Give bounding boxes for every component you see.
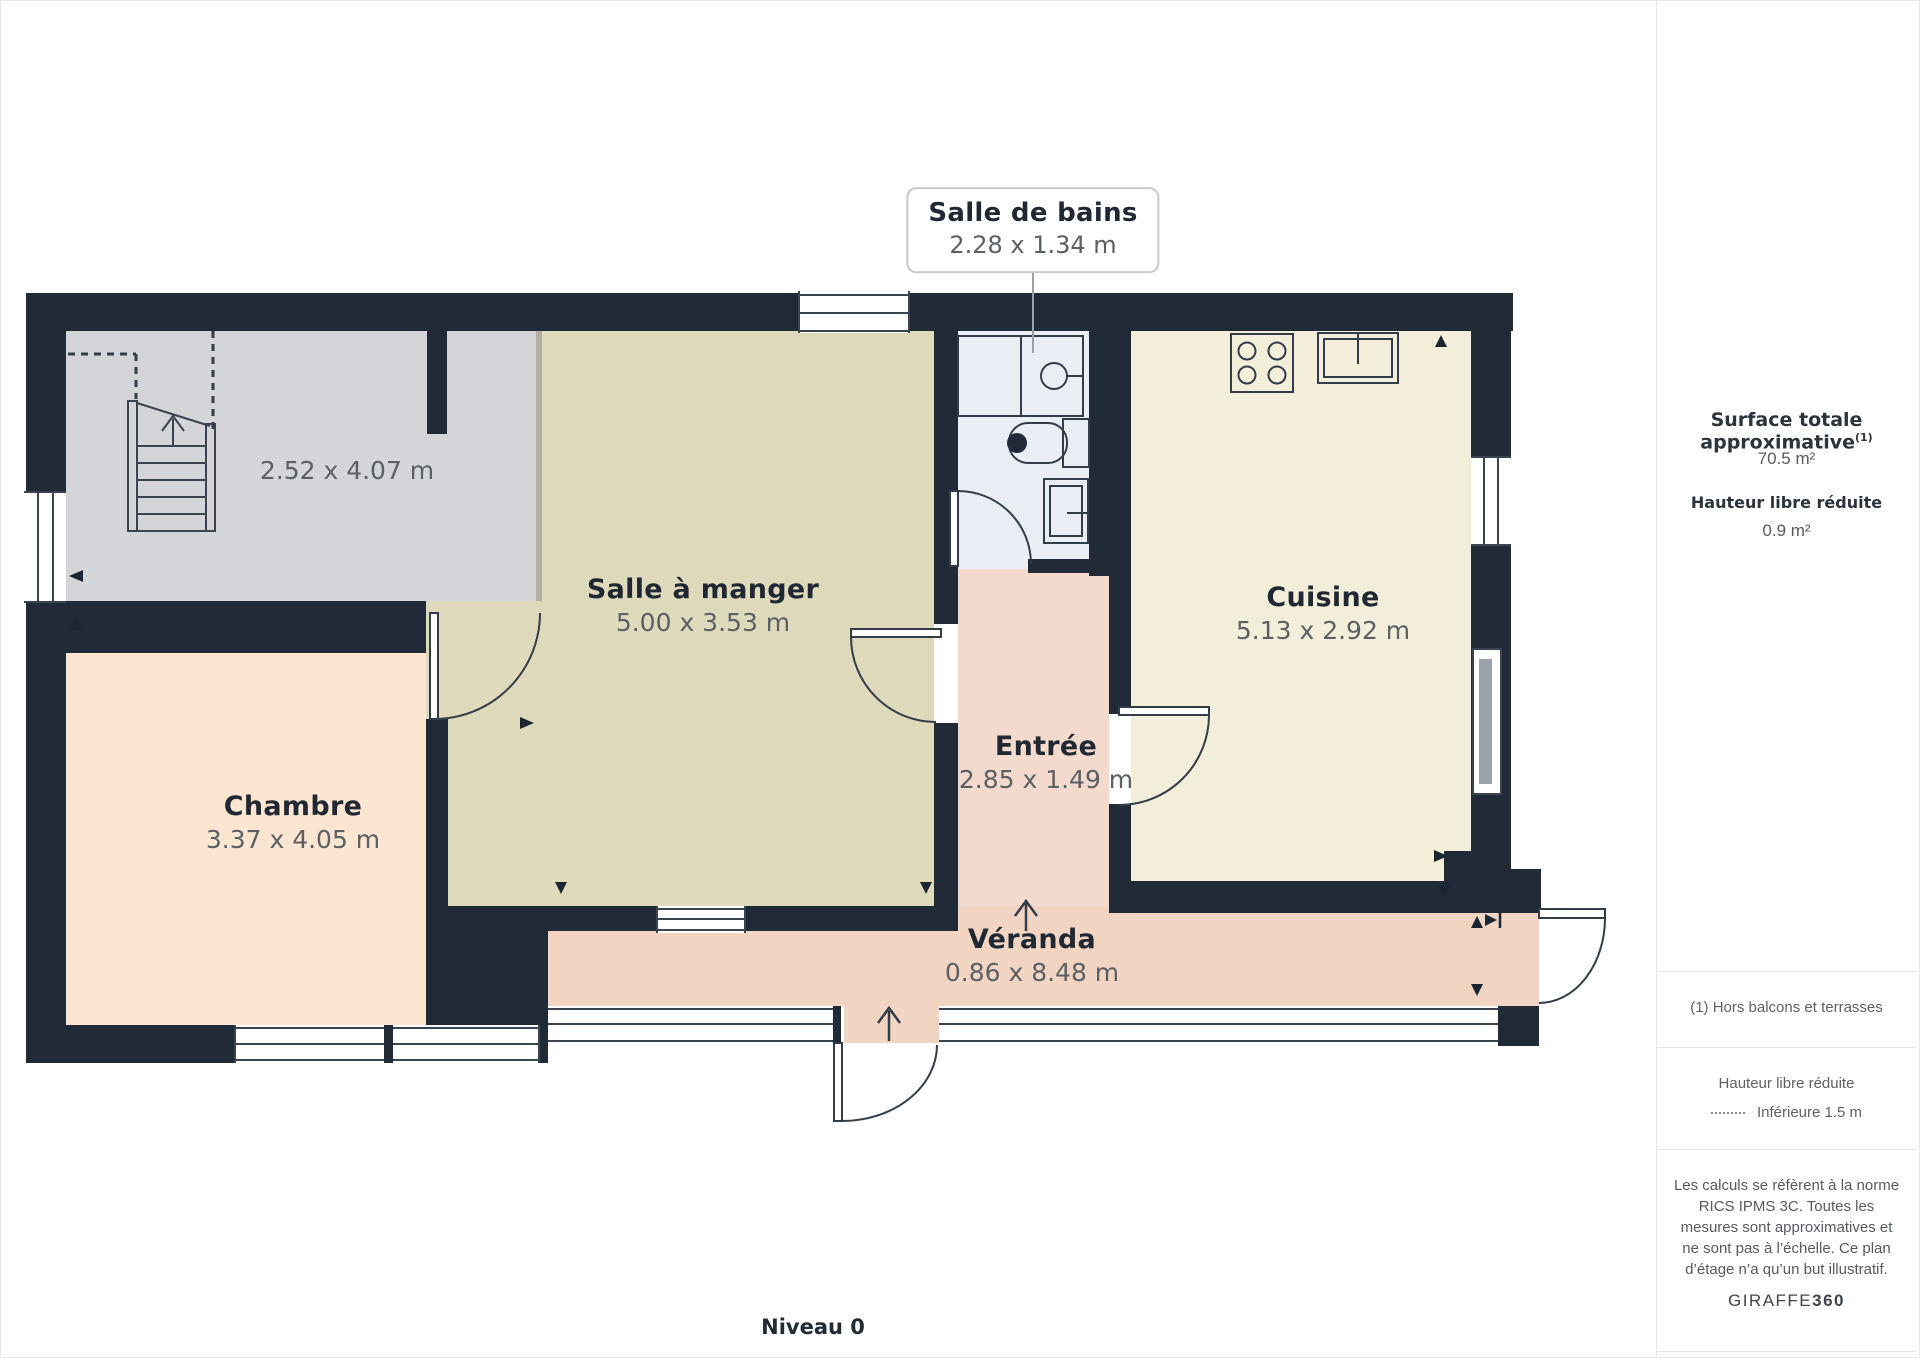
open-plan-divider (536, 331, 542, 601)
brand-bold: 360 (1812, 1291, 1845, 1310)
total-area-value: 70.5 m² (1657, 449, 1916, 469)
window-kitchen-right (1471, 456, 1511, 546)
brand-logo: GIRAFFE360 (1657, 1291, 1916, 1311)
sliding-panel-kitchen-right (1473, 649, 1501, 794)
total-area-title: Surface totale approximative(1) (1657, 409, 1916, 453)
window-dining-bottom (656, 906, 746, 933)
window-veranda-left (548, 1006, 833, 1043)
brand-regular: GIRAFFE (1728, 1291, 1812, 1310)
window-left (24, 491, 66, 603)
stairs-area-dimensions: 2.52 x 4.07 m (260, 455, 434, 488)
bathroom-callout: Salle de bains 2.28 x 1.34 m (906, 187, 1159, 273)
total-area-label: Surface totale approximative (1700, 409, 1862, 453)
window-veranda-right (939, 1006, 1498, 1043)
divider (1657, 1047, 1916, 1048)
legend-title: Hauteur libre réduite (1657, 1075, 1916, 1092)
disclaimer-text: Les calculs se réfèrent à la norme RICS … (1657, 1175, 1916, 1280)
floor-plan-page: 2.52 x 4.07 m Chambre 3.37 x 4.05 m Sall… (0, 0, 1920, 1358)
legend-row: Inférieure 1.5 m (1657, 1104, 1916, 1121)
dining-room-label: Salle à manger 5.00 x 3.53 m (587, 573, 819, 639)
door-veranda-exterior (1539, 909, 1605, 1003)
kitchen-label: Cuisine 5.13 x 2.92 m (1236, 581, 1410, 647)
level-label: Niveau 0 (761, 1315, 865, 1339)
total-area-superscript: (1) (1855, 431, 1873, 444)
legend-item: Inférieure 1.5 m (1757, 1104, 1862, 1121)
divider (1657, 971, 1916, 972)
entry-label: Entrée 2.85 x 1.49 m (959, 730, 1133, 796)
door-entrance (834, 1043, 937, 1121)
reduced-height-label: Hauteur libre réduite (1657, 493, 1916, 512)
footnote: (1) Hors balcons et terrasses (1657, 999, 1916, 1016)
divider (1657, 1351, 1916, 1352)
window-top-dining (798, 291, 910, 333)
info-sidebar: Surface totale approximative(1) 70.5 m² … (1656, 1, 1916, 1358)
reduced-height-value: 0.9 m² (1657, 521, 1916, 541)
dotted-line-icon (1711, 1112, 1745, 1114)
window-bedroom-bottom (234, 1025, 540, 1063)
room-floors (66, 331, 1539, 1043)
veranda-label: Véranda 0.86 x 8.48 m (945, 923, 1119, 989)
divider (1657, 1149, 1916, 1150)
floor-plan-drawing (1, 1, 1656, 1358)
bedroom-label: Chambre 3.37 x 4.05 m (206, 790, 380, 856)
